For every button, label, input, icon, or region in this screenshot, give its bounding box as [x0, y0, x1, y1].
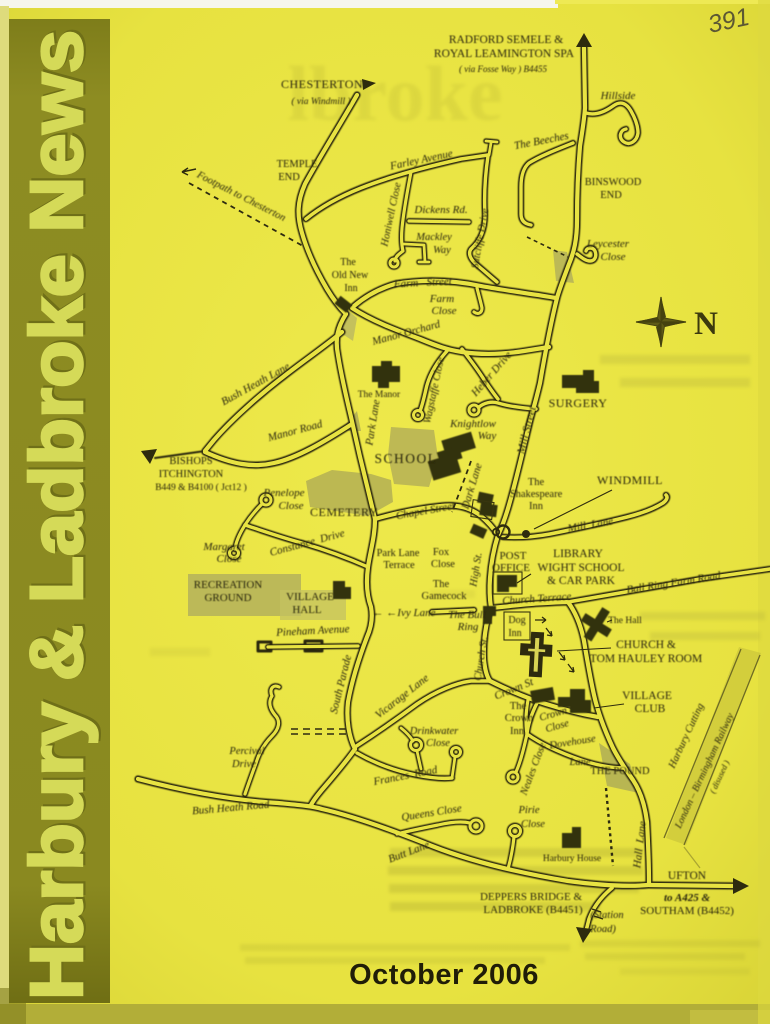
svg-text:Dickens Rd.: Dickens Rd.	[413, 204, 467, 216]
svg-text:The Manor: The Manor	[358, 390, 401, 400]
svg-text:The: The	[510, 701, 527, 712]
svg-text:END: END	[600, 190, 622, 201]
svg-text:Crown: Crown	[505, 713, 534, 724]
svg-text:DEPPERS BRIDGE &: DEPPERS BRIDGE &	[480, 891, 583, 903]
svg-text:Close: Close	[278, 500, 303, 512]
svg-text:RADFORD SEMELE &: RADFORD SEMELE &	[449, 34, 563, 46]
svg-text:The: The	[433, 579, 450, 590]
svg-text:(Station: (Station	[590, 910, 623, 921]
svg-text:The: The	[340, 257, 356, 268]
svg-text:TOM HAULEY ROOM: TOM HAULEY ROOM	[590, 653, 702, 665]
svg-text:Harbury & Ladbroke News: Harbury & Ladbroke News	[15, 30, 98, 1000]
svg-text:( via Windmill ): ( via Windmill )	[291, 96, 350, 107]
svg-text:Leycester: Leycester	[586, 238, 630, 250]
svg-text:GROUND: GROUND	[204, 592, 251, 604]
svg-text:Hillside: Hillside	[600, 90, 636, 102]
svg-text:SURGERY: SURGERY	[549, 396, 608, 410]
svg-text:Close: Close	[431, 559, 455, 570]
svg-text:Inn: Inn	[510, 726, 525, 737]
svg-text:Farm: Farm	[429, 293, 455, 305]
svg-text:CHURCH &: CHURCH &	[616, 639, 676, 651]
svg-text:HALL: HALL	[292, 604, 322, 616]
svg-text:Drinkwater: Drinkwater	[409, 726, 459, 737]
svg-text:Harbury House: Harbury House	[543, 854, 601, 864]
svg-text:Drive: Drive	[231, 759, 256, 770]
svg-text:VILLAGE: VILLAGE	[622, 690, 672, 702]
svg-text:CHESTERTON: CHESTERTON	[281, 77, 363, 91]
svg-text:END: END	[278, 172, 300, 183]
svg-text:Pirie: Pirie	[518, 805, 540, 816]
svg-text:SOUTHAM (B4452): SOUTHAM (B4452)	[640, 905, 734, 917]
svg-text:TEMPLE: TEMPLE	[277, 159, 318, 170]
svg-text:Close: Close	[426, 738, 450, 749]
svg-text:Inn: Inn	[344, 283, 357, 294]
svg-text:Ring: Ring	[457, 621, 479, 633]
svg-text:Inn: Inn	[529, 501, 544, 512]
svg-text:Mackley: Mackley	[415, 232, 452, 243]
svg-text:← ←Ivy Lane: ← ←Ivy Lane	[373, 607, 436, 619]
svg-text:Close: Close	[216, 553, 241, 565]
svg-text:CEMETERY: CEMETERY	[310, 505, 378, 519]
svg-text:Knightlow: Knightlow	[449, 418, 497, 430]
svg-text:Old New: Old New	[332, 270, 369, 281]
svg-text:The Bull: The Bull	[448, 609, 486, 621]
svg-text:WIGHT SCHOOL: WIGHT SCHOOL	[538, 562, 625, 574]
svg-text:Dog: Dog	[508, 615, 525, 626]
svg-text:Penelope: Penelope	[263, 487, 305, 499]
svg-text:LADBROKE (B4451): LADBROKE (B4451)	[483, 904, 583, 916]
svg-text:Margaret: Margaret	[202, 541, 245, 553]
svg-text:Road): Road)	[589, 924, 616, 935]
svg-text:ITCHINGTON: ITCHINGTON	[159, 469, 224, 480]
svg-text:WINDMILL: WINDMILL	[597, 473, 663, 487]
svg-text:LIBRARY: LIBRARY	[553, 548, 604, 560]
svg-text:BISHOPS: BISHOPS	[169, 456, 212, 467]
svg-text:Way: Way	[478, 430, 497, 442]
svg-text:CLUB: CLUB	[635, 703, 666, 715]
svg-text:POST: POST	[500, 550, 527, 562]
svg-text:& CAR PARK: & CAR PARK	[547, 575, 616, 587]
svg-text:THE POUND: THE POUND	[590, 766, 650, 777]
svg-text:RECREATION: RECREATION	[194, 579, 263, 591]
svg-text:Park Lane: Park Lane	[377, 548, 420, 559]
svg-text:N: N	[694, 306, 718, 342]
svg-text:to A425 &: to A425 &	[664, 892, 710, 904]
svg-text:Gamecock: Gamecock	[422, 591, 468, 602]
svg-text:SCHOOL: SCHOOL	[374, 451, 437, 466]
svg-text:Lane: Lane	[569, 757, 591, 768]
svg-text:Shakespeare: Shakespeare	[510, 489, 563, 500]
svg-text:Percival: Percival	[228, 746, 264, 757]
svg-text:UFTON: UFTON	[668, 870, 707, 882]
svg-text:OFFICE: OFFICE	[492, 562, 530, 574]
svg-text:October 2006: October 2006	[349, 959, 539, 991]
svg-text:Terrace: Terrace	[383, 560, 415, 571]
svg-text:B449 & B4100 ( Jct12 ): B449 & B4100 ( Jct12 )	[155, 482, 247, 493]
svg-text:Way: Way	[433, 245, 451, 256]
svg-text:BINSWOOD: BINSWOOD	[585, 177, 642, 188]
svg-text:Close: Close	[600, 251, 625, 263]
svg-text:Inn: Inn	[508, 628, 521, 639]
svg-text:Close: Close	[431, 305, 456, 317]
svg-text:VILLAGE: VILLAGE	[286, 591, 334, 603]
svg-text:Fox: Fox	[433, 547, 450, 558]
svg-text:ROYAL LEAMINGTON SPA: ROYAL LEAMINGTON SPA	[434, 48, 575, 60]
svg-text:The: The	[528, 477, 545, 488]
svg-text:The Hall: The Hall	[608, 616, 642, 626]
svg-text:Close: Close	[521, 819, 545, 830]
svg-text:( via Fosse Way ) B4455: ( via Fosse Way ) B4455	[459, 64, 547, 74]
